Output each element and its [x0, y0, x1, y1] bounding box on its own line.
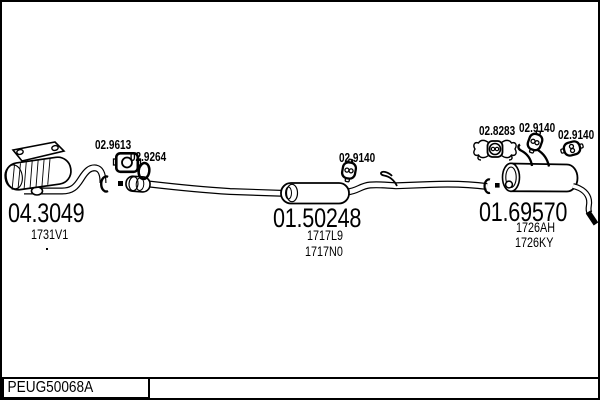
gasket-label: 02.9613 [95, 139, 131, 152]
rubber-mount-icon-rear-2 [559, 139, 584, 157]
flange-bolt-hole [51, 145, 58, 151]
mount-label-rear-2: 02.9140 [558, 129, 594, 142]
mid-pipe-flare [485, 179, 490, 193]
flange-bolt-hole [16, 149, 23, 155]
middle-silencer [281, 183, 349, 204]
stray-dot [46, 248, 48, 250]
front-variant: 1731V1 [31, 228, 68, 242]
bracket-label: 02.8283 [479, 125, 515, 138]
catalog-code-box: PEUG50068A [2, 377, 150, 399]
middle-variant-1: 1717L9 [307, 229, 343, 243]
tail-pipe [573, 186, 596, 224]
rear-silencer [503, 163, 578, 191]
catalog-page: 02.9613 02.9264 02.9140 02.8283 02.9140 … [0, 0, 600, 400]
bracket-icon [474, 140, 516, 160]
catalog-code: PEUG50068A [4, 379, 93, 397]
middle-variant-2: 1717N0 [305, 245, 343, 259]
joint-dot [495, 183, 500, 188]
exhaust-diagram [2, 2, 598, 377]
tailpipe-tip [588, 212, 596, 224]
joint-dot [118, 181, 123, 186]
diagram-area: 02.9613 02.9264 02.9140 02.8283 02.9140 … [2, 2, 598, 379]
front-part-number: 04.3049 [8, 200, 84, 227]
catalytic-converter [4, 142, 73, 191]
rear-connecting-pipe [347, 184, 487, 192]
clamp-label: 02.9264 [130, 151, 166, 164]
rear-variant-1: 1726AH [516, 221, 555, 235]
intermediate-pipe [149, 184, 288, 194]
rear-variant-2: 1726KY [515, 236, 553, 250]
mount-label-middle: 02.9140 [339, 152, 375, 165]
mount-label-rear-1: 02.9140 [519, 122, 555, 135]
